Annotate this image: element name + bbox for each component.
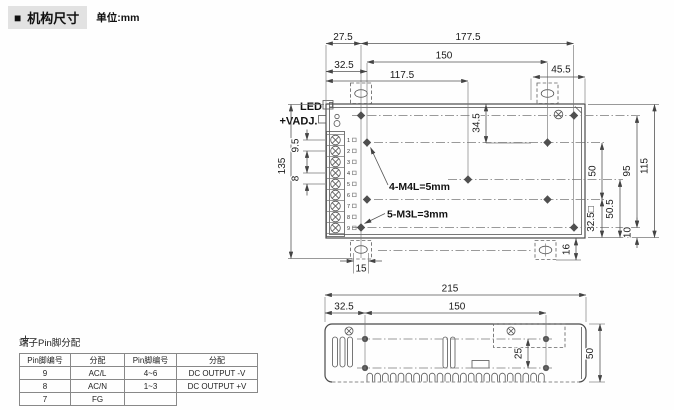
dim-32-5-sq: 32.5□ bbox=[586, 206, 597, 232]
pin-number-empty bbox=[125, 393, 177, 406]
pin-assignment-value: AC/N bbox=[71, 380, 125, 393]
dim-45-5: 45.5 bbox=[551, 65, 571, 76]
pin-table-title: 端子Pin脚分配 bbox=[19, 335, 258, 349]
vadj-access-hole bbox=[319, 116, 327, 124]
vadj-label: +VADJ. bbox=[279, 116, 317, 128]
pin-assignment-value: DC OUTPUT -V bbox=[177, 367, 258, 380]
dim-side-150: 150 bbox=[449, 302, 466, 313]
mounting-hole bbox=[357, 111, 365, 119]
terminal-number: 9 bbox=[347, 226, 350, 232]
pin-assignment: 端子Pin脚分配 Pin脚编号 分配 Pin脚编号 分配 9 AC/L 4~6 … bbox=[19, 335, 258, 406]
dim-150: 150 bbox=[436, 51, 453, 62]
extension-lines bbox=[288, 45, 659, 274]
arch-vent bbox=[468, 373, 474, 381]
terminal-number: 5 bbox=[347, 182, 350, 188]
vent-slot bbox=[333, 337, 338, 367]
dimension-slot-width: 15 bbox=[340, 261, 382, 275]
arch-vent bbox=[539, 373, 545, 381]
pin-assignment-value: FG bbox=[71, 393, 125, 406]
dim-32-5: 32.5 bbox=[334, 60, 354, 71]
dim-135: 135 bbox=[277, 157, 288, 174]
wire-entry-square bbox=[353, 138, 357, 142]
dim-177-5: 177.5 bbox=[455, 32, 480, 43]
note-m3: 5-M3L=3mm bbox=[387, 209, 448, 221]
dim-27-5: 27.5 bbox=[333, 32, 353, 43]
vent-slots bbox=[333, 337, 456, 368]
arch-vent bbox=[445, 373, 451, 381]
dim-117-5: 117.5 bbox=[390, 70, 415, 81]
wire-entry-square bbox=[353, 182, 357, 186]
vent-slot bbox=[340, 337, 345, 367]
pin-number: 9 bbox=[20, 367, 71, 380]
mounting-hole bbox=[570, 111, 578, 119]
dim-15: 15 bbox=[355, 264, 367, 275]
dim-side-215: 215 bbox=[442, 284, 459, 295]
arch-vent bbox=[429, 373, 435, 381]
pin-number: 8 bbox=[20, 380, 71, 393]
label-area-dashed bbox=[494, 324, 566, 348]
dim-8: 8 bbox=[291, 175, 302, 181]
arch-vent bbox=[523, 373, 529, 381]
wire-entry-square bbox=[353, 226, 357, 230]
vent-slot bbox=[348, 337, 353, 367]
arch-vent bbox=[367, 373, 373, 381]
leader-m3 bbox=[365, 214, 386, 224]
vent-slot bbox=[443, 337, 448, 368]
dim-34-5: 34.5 bbox=[472, 113, 483, 133]
dim-50: 50 bbox=[588, 165, 599, 177]
terminal-screws bbox=[331, 135, 341, 233]
arch-vent bbox=[390, 373, 396, 381]
terminal-number: 4 bbox=[347, 171, 350, 177]
arch-vent bbox=[507, 373, 513, 381]
pin-number: 7 bbox=[20, 393, 71, 406]
arch-vent bbox=[437, 373, 443, 381]
terminal-number: 8 bbox=[347, 215, 350, 221]
pin-number: 4~6 bbox=[125, 367, 177, 380]
dim-10: 10 bbox=[623, 227, 634, 239]
arch-vent bbox=[515, 373, 521, 381]
terminal-number: 3 bbox=[347, 160, 350, 166]
fg-label: FG bbox=[92, 395, 103, 404]
pin-assignment-empty bbox=[177, 393, 258, 406]
dimensions-top: 27.5 177.5 150 32.5 117.5 45.5 bbox=[326, 32, 585, 81]
arch-vent bbox=[484, 373, 490, 381]
pin-number: 1~3 bbox=[125, 380, 177, 393]
terminal-number: 1 bbox=[347, 138, 350, 144]
dim-side-50: 50 bbox=[585, 348, 596, 360]
mounting-hole bbox=[363, 195, 371, 203]
dim-50-5: 50.5 bbox=[605, 199, 616, 219]
dim-side-25: 25 bbox=[514, 348, 525, 360]
arch-vent bbox=[383, 373, 389, 381]
vadj-potentiometer bbox=[334, 121, 340, 127]
side-view: 215 32.5 150 25 50 bbox=[325, 284, 605, 383]
arch-vent bbox=[422, 373, 428, 381]
mounting-hole bbox=[570, 223, 578, 231]
terminal-number: 2 bbox=[347, 149, 350, 155]
led-label: LED bbox=[300, 101, 322, 113]
dim-95: 95 bbox=[622, 165, 633, 177]
wire-entry-square bbox=[353, 149, 357, 153]
terminal-numbers: 123456789 bbox=[347, 138, 356, 232]
note-m4: 4-M4L=5mm bbox=[389, 181, 450, 193]
arch-vent bbox=[398, 373, 404, 381]
leader-m4 bbox=[371, 148, 389, 186]
case-outline bbox=[326, 104, 585, 238]
table-row: 8 AC/N 1~3 DC OUTPUT +V bbox=[20, 380, 258, 393]
terminal-number: 6 bbox=[347, 193, 350, 199]
dim-side-32-5: 32.5 bbox=[334, 302, 354, 313]
table-row: 9 AC/L 4~6 DC OUTPUT -V bbox=[20, 367, 258, 380]
vent-slot bbox=[451, 337, 456, 368]
pin-table-header: 分配 bbox=[177, 354, 258, 367]
dimensions-left: 135 9.5 8 bbox=[277, 105, 307, 259]
led-chip bbox=[330, 103, 333, 108]
dim-16: 16 bbox=[562, 244, 573, 256]
mounting-hole bbox=[543, 195, 551, 203]
wire-entry-square bbox=[353, 215, 357, 219]
arch-vent bbox=[500, 373, 506, 381]
wire-entry-square bbox=[353, 193, 357, 197]
pin-table-header: Pin脚编号 bbox=[125, 354, 177, 367]
arch-vent bbox=[461, 373, 467, 381]
arch-vent bbox=[375, 373, 381, 381]
dim-9-5: 9.5 bbox=[291, 138, 302, 152]
terminal-number: 7 bbox=[347, 204, 350, 210]
ground-icon bbox=[21, 335, 30, 344]
wire-entry-square bbox=[353, 204, 357, 208]
table-row: 7 FG bbox=[20, 393, 258, 406]
arch-vent bbox=[476, 373, 482, 381]
pin-assignment-value: AC/L bbox=[71, 367, 125, 380]
pin-table-header: Pin脚编号 bbox=[20, 354, 71, 367]
pin-table: Pin脚编号 分配 Pin脚编号 分配 9 AC/L 4~6 DC OUTPUT… bbox=[19, 353, 258, 406]
bottom-arch-vents bbox=[367, 373, 544, 381]
arch-vent bbox=[531, 373, 537, 381]
mounting-hole bbox=[464, 175, 472, 183]
led-indicator bbox=[335, 114, 339, 118]
dim-115: 115 bbox=[640, 158, 651, 174]
connector-cutout bbox=[472, 361, 489, 369]
pin-assignment-value: DC OUTPUT +V bbox=[177, 380, 258, 393]
arch-vent bbox=[492, 373, 498, 381]
mounting-hole bbox=[363, 138, 371, 146]
arch-vent bbox=[414, 373, 420, 381]
wire-entry-square bbox=[353, 171, 357, 175]
arch-vent bbox=[453, 373, 459, 381]
mounting-hole bbox=[357, 223, 365, 231]
dimensions-right: 34.5 50 32.5□ 50.5 95 10 115 16 bbox=[472, 105, 655, 261]
pin-table-header: 分配 bbox=[71, 354, 125, 367]
top-view: 123456789 LED +VADJ. bbox=[277, 32, 659, 335]
mounting-hole bbox=[543, 138, 551, 146]
wire-entry-square bbox=[353, 160, 357, 164]
arch-vent bbox=[406, 373, 412, 381]
